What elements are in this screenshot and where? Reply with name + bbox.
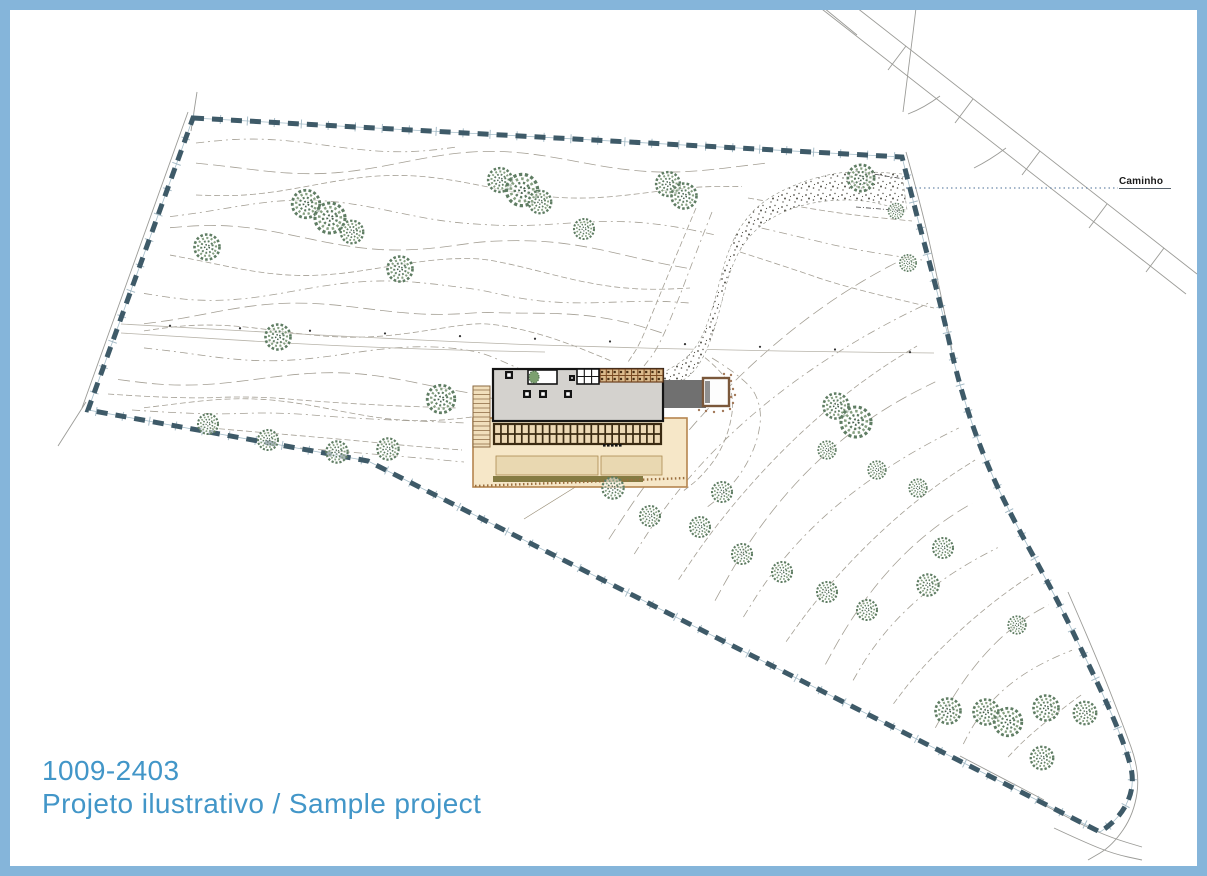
caminho-label-text: Caminho: [1119, 176, 1163, 187]
tree: [1074, 702, 1097, 725]
tree: [900, 255, 916, 271]
road-tick: [955, 99, 973, 123]
corner-extension: [58, 402, 86, 446]
tree: [602, 477, 624, 499]
tree: [326, 441, 348, 463]
tree: [909, 479, 927, 497]
tree: [848, 165, 875, 192]
tree: [888, 203, 903, 218]
tree: [341, 221, 364, 244]
tree: [258, 430, 278, 450]
tree: [1031, 747, 1054, 770]
site-plan-drawing: [0, 0, 1207, 876]
road-tick: [1089, 204, 1107, 228]
tree: [671, 183, 696, 208]
road-stub: [824, 8, 857, 35]
caminho-label: Caminho: [1119, 176, 1171, 189]
building-group: [473, 369, 736, 487]
gravel-path: [659, 172, 907, 386]
tree: [198, 414, 218, 434]
site-plan-canvas: Caminho 1009-2403 Projeto ilustrativo / …: [0, 0, 1207, 876]
tree: [265, 324, 290, 349]
tree: [868, 461, 886, 479]
tree: [917, 574, 939, 596]
tree: [818, 441, 836, 459]
tree: [712, 482, 732, 502]
tree: [817, 582, 837, 602]
tree: [690, 517, 710, 537]
terrace-panel-right: [601, 456, 662, 475]
tree: [574, 219, 594, 239]
road-tick: [888, 46, 906, 70]
tree: [194, 234, 219, 259]
project-code: 1009-2403: [42, 754, 481, 787]
tree: [377, 438, 399, 460]
tree: [1033, 695, 1058, 720]
courtyard-tree: [529, 371, 539, 383]
tree: [732, 544, 752, 564]
gravel-band: [659, 172, 907, 386]
terrace-panel-left: [496, 456, 598, 475]
tree: [935, 698, 960, 723]
road-tick: [1022, 151, 1040, 175]
tree: [857, 600, 877, 620]
parking-ramp: [705, 381, 710, 403]
tree: [994, 708, 1022, 736]
survey-edge-line: [82, 112, 188, 408]
tree: [772, 562, 792, 582]
tree: [933, 538, 953, 558]
road-spur: [974, 148, 1006, 168]
roof-skylight-grid: [577, 369, 599, 384]
driveway: [664, 380, 706, 408]
tree: [1008, 616, 1026, 634]
road-tick: [1146, 248, 1164, 272]
tree: [529, 191, 552, 214]
project-subtitle: Projeto ilustrativo / Sample project: [42, 787, 481, 820]
road-edge: [852, 4, 1197, 274]
tree: [427, 385, 455, 413]
pergola-deck: [494, 424, 661, 444]
road-spur: [908, 96, 940, 114]
tree: [841, 407, 871, 437]
title-block: 1009-2403 Projeto ilustrativo / Sample p…: [42, 754, 481, 820]
tree: [387, 256, 412, 281]
roof-deck-grid: [600, 369, 663, 382]
road-edge: [818, 6, 1186, 294]
exterior-stairs: [473, 386, 490, 447]
tree: [640, 506, 660, 526]
